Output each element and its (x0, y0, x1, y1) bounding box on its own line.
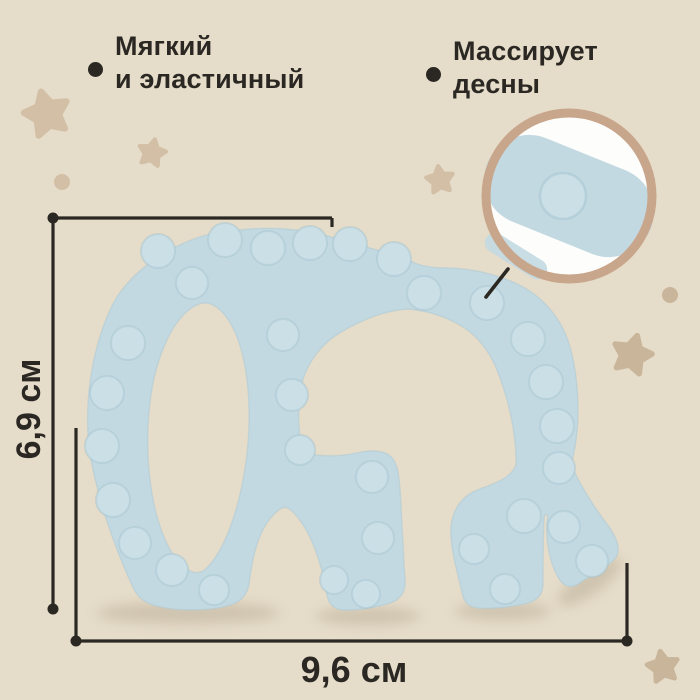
height-dimension-label: 6,9 см (10, 329, 52, 489)
feature-line: и эластичный (115, 63, 304, 96)
product-card: Мягкий и эластичный Массирует десны 6,9 … (0, 0, 700, 700)
feature-massages-gums: Массирует десны (426, 35, 598, 101)
decor-dot (662, 287, 678, 303)
product-illustration (0, 0, 700, 700)
feature-line: Массирует (453, 35, 598, 68)
bullet-icon (88, 62, 103, 77)
feature-line: десны (453, 68, 598, 101)
decor-dot (54, 174, 70, 190)
magnified-bump (540, 173, 586, 219)
feature-soft-elastic: Мягкий и эластичный (88, 30, 304, 96)
feature-text: Массирует десны (453, 35, 598, 101)
feature-line: Мягкий (115, 30, 304, 63)
bullet-icon (426, 67, 441, 82)
feature-text: Мягкий и эластичный (115, 30, 304, 96)
width-dimension-label: 9,6 см (244, 649, 464, 691)
